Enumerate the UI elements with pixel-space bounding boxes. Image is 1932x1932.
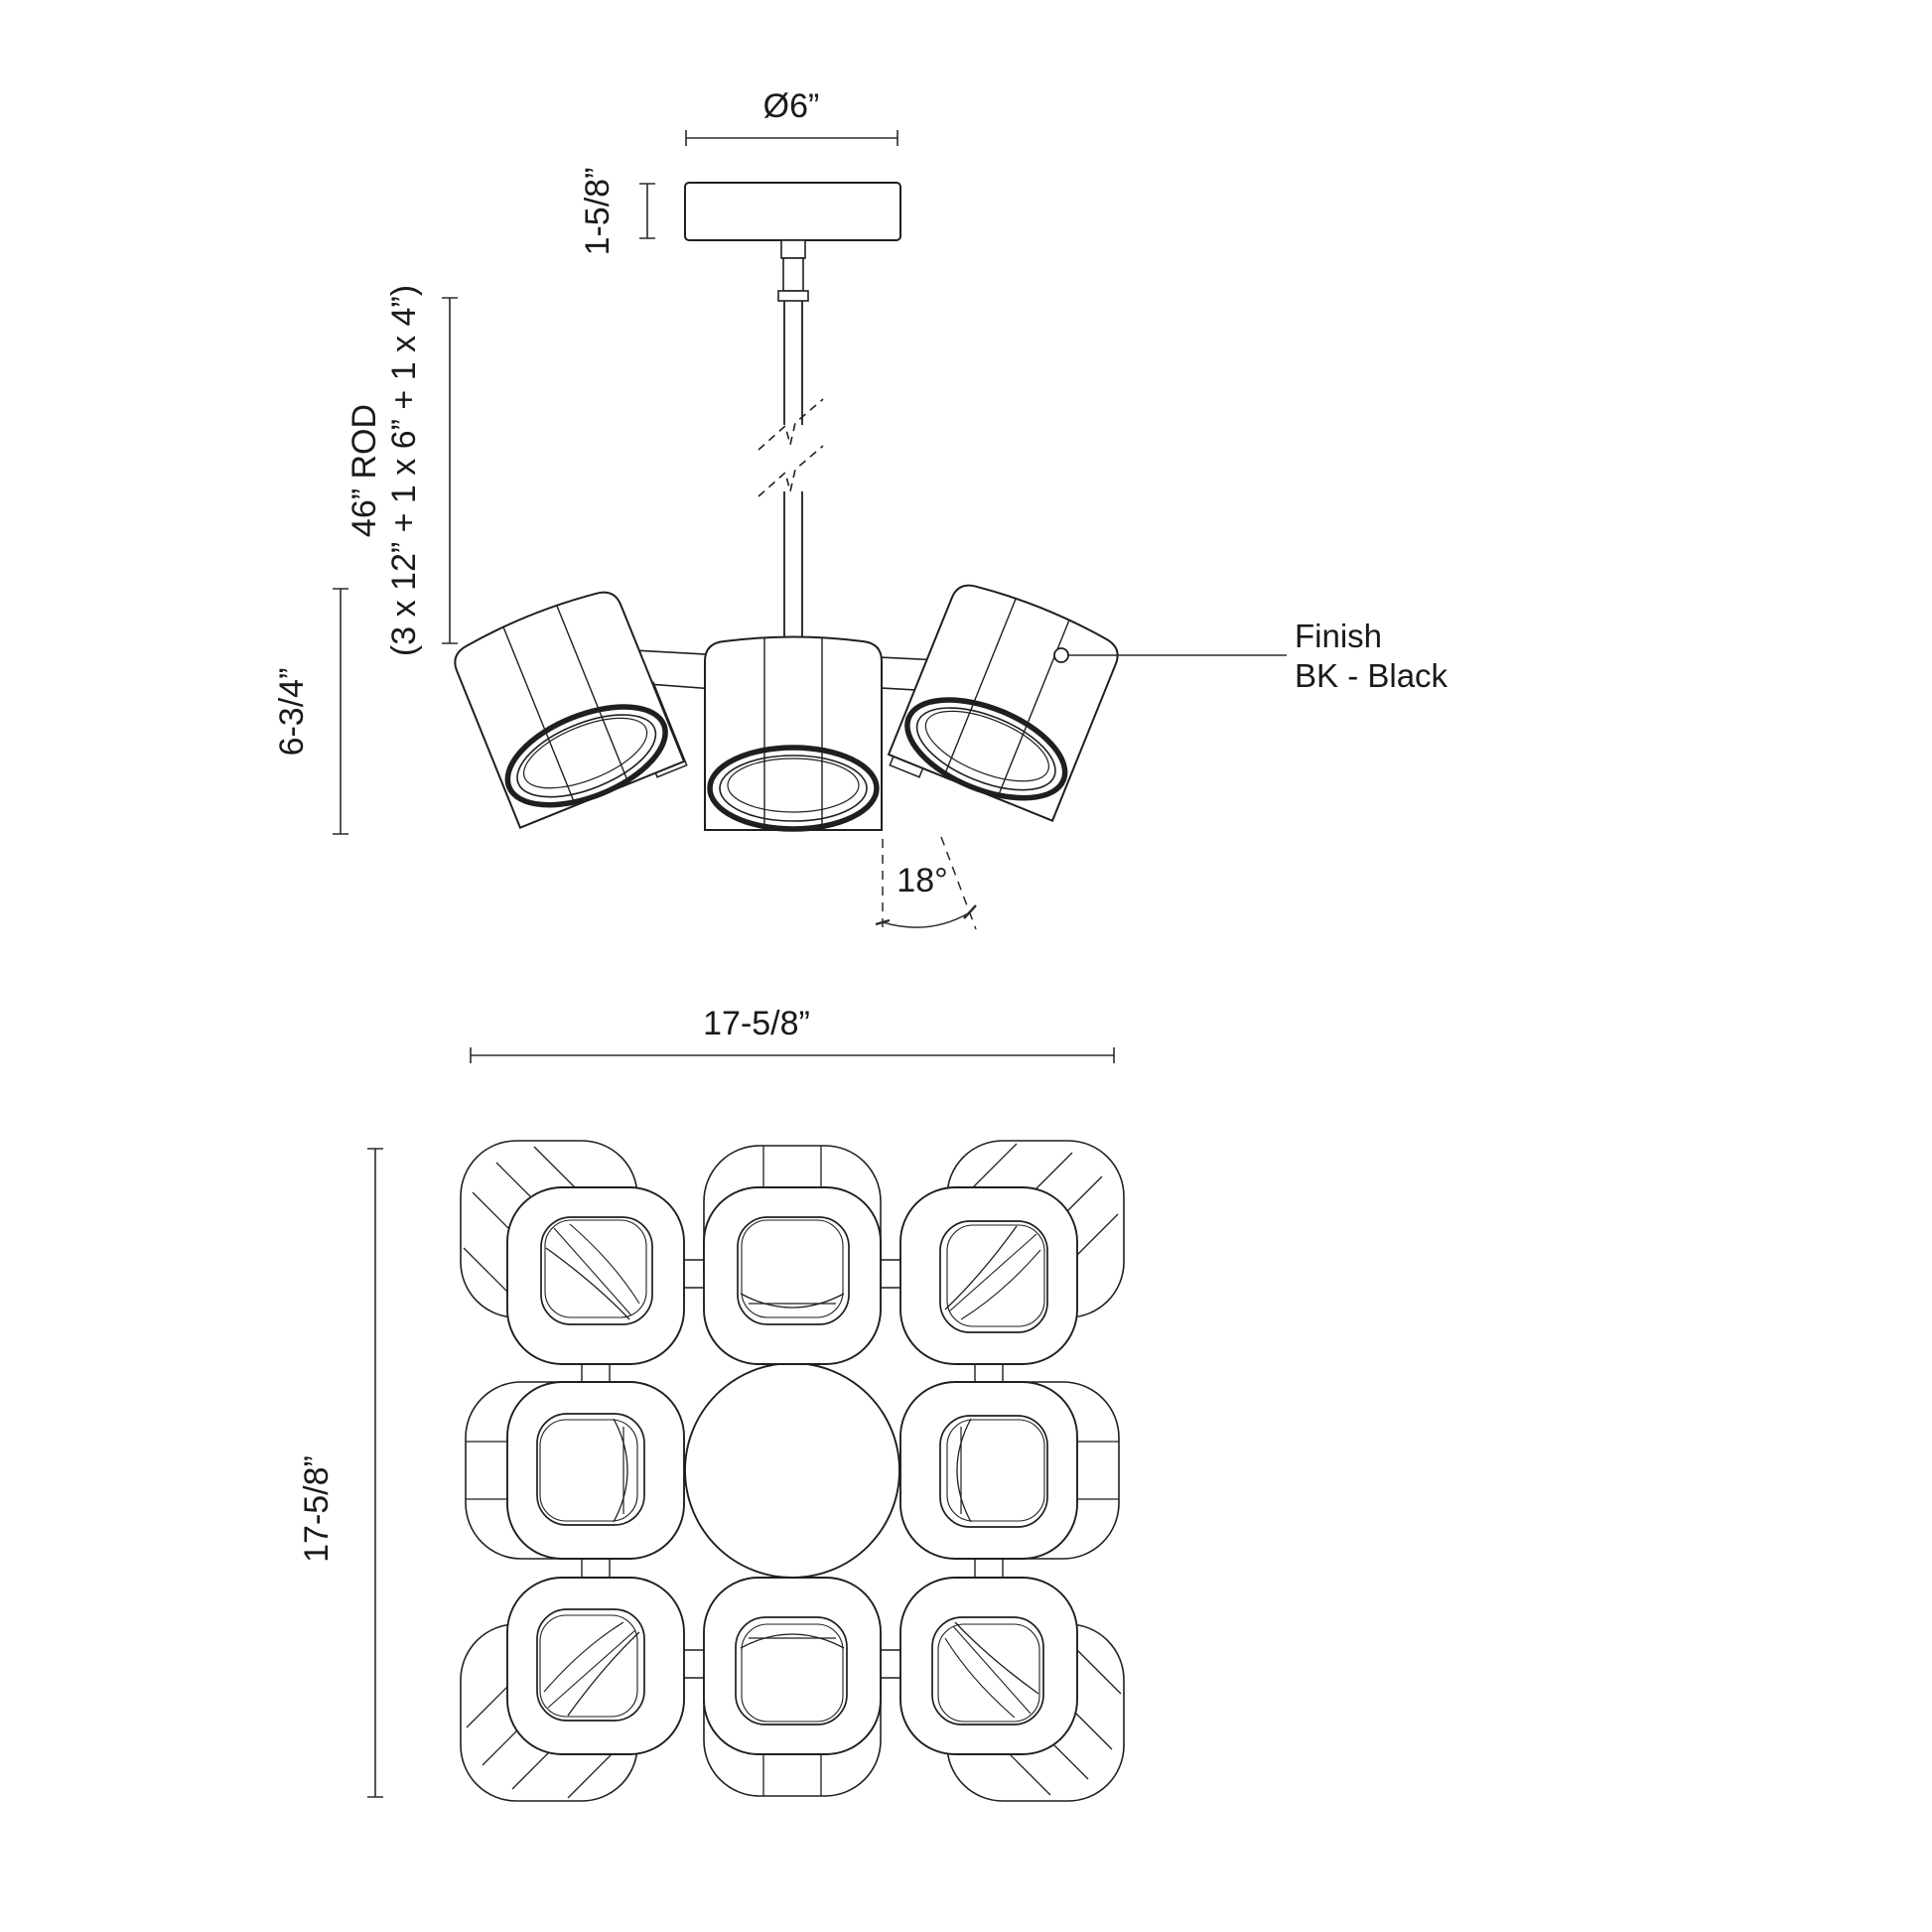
technical-drawing: Ø6” 1-5/8” 46” ROD (3 x 12” + 1 x 6” + 1… bbox=[0, 0, 1932, 1932]
spec-sheet: Ø6” 1-5/8” 46” ROD (3 x 12” + 1 x 6” + 1… bbox=[0, 0, 1932, 1932]
finish-label-line1: Finish bbox=[1295, 618, 1382, 654]
tilt-angle-dimension: 18° bbox=[876, 837, 976, 929]
plan-shade-bottom-left bbox=[461, 1578, 684, 1801]
finish-callout: Finish BK - Black bbox=[1054, 618, 1449, 694]
plan-height-dimension: 17-5/8” bbox=[298, 1149, 383, 1797]
rod-length-text-line1: 46” ROD bbox=[345, 404, 383, 537]
plan-width-dimension: 17-5/8” bbox=[471, 1005, 1114, 1063]
plan-view: 17-5/8” 17-5/8” bbox=[298, 1005, 1124, 1801]
central-hub-circle bbox=[685, 1363, 899, 1578]
plan-shade-top-right bbox=[900, 1141, 1124, 1364]
fixture-height-dimension: 6-3/4” bbox=[273, 589, 348, 834]
rod-length-dimension: 46” ROD (3 x 12” + 1 x 6” + 1 x 4”) bbox=[345, 285, 458, 656]
plan-shade-middle-right bbox=[900, 1382, 1119, 1559]
left-shade bbox=[448, 583, 684, 828]
tilt-angle-text: 18° bbox=[897, 862, 947, 899]
right-shade bbox=[889, 576, 1125, 821]
plan-shade-bottom-middle bbox=[704, 1578, 881, 1796]
plan-shade-top-middle bbox=[704, 1146, 881, 1364]
canopy-outline bbox=[685, 183, 900, 240]
rod-length-text-line2: (3 x 12” + 1 x 6” + 1 x 4”) bbox=[385, 285, 423, 656]
plan-height-text: 17-5/8” bbox=[298, 1455, 336, 1563]
rod bbox=[784, 301, 802, 645]
plan-width-text: 17-5/8” bbox=[703, 1005, 810, 1042]
plan-shade-top-left bbox=[461, 1141, 684, 1364]
center-shade bbox=[705, 637, 882, 831]
elevation-view: Ø6” 1-5/8” 46” ROD (3 x 12” + 1 x 6” + 1… bbox=[273, 87, 1449, 929]
plan-shade-bottom-right bbox=[900, 1578, 1124, 1801]
canopy-diameter-dimension: Ø6” bbox=[686, 87, 897, 146]
rod-break-symbol bbox=[759, 399, 823, 496]
canopy-height-text: 1-5/8” bbox=[579, 168, 617, 256]
canopy-diameter-text: Ø6” bbox=[763, 87, 820, 125]
finish-label-line2: BK - Black bbox=[1295, 657, 1449, 694]
hang-straight-coupler bbox=[778, 240, 808, 301]
fixture-height-text: 6-3/4” bbox=[273, 668, 311, 757]
finish-leader-dot bbox=[1054, 648, 1068, 662]
plan-shade-middle-left bbox=[466, 1382, 684, 1559]
canopy-height-dimension: 1-5/8” bbox=[579, 168, 655, 256]
